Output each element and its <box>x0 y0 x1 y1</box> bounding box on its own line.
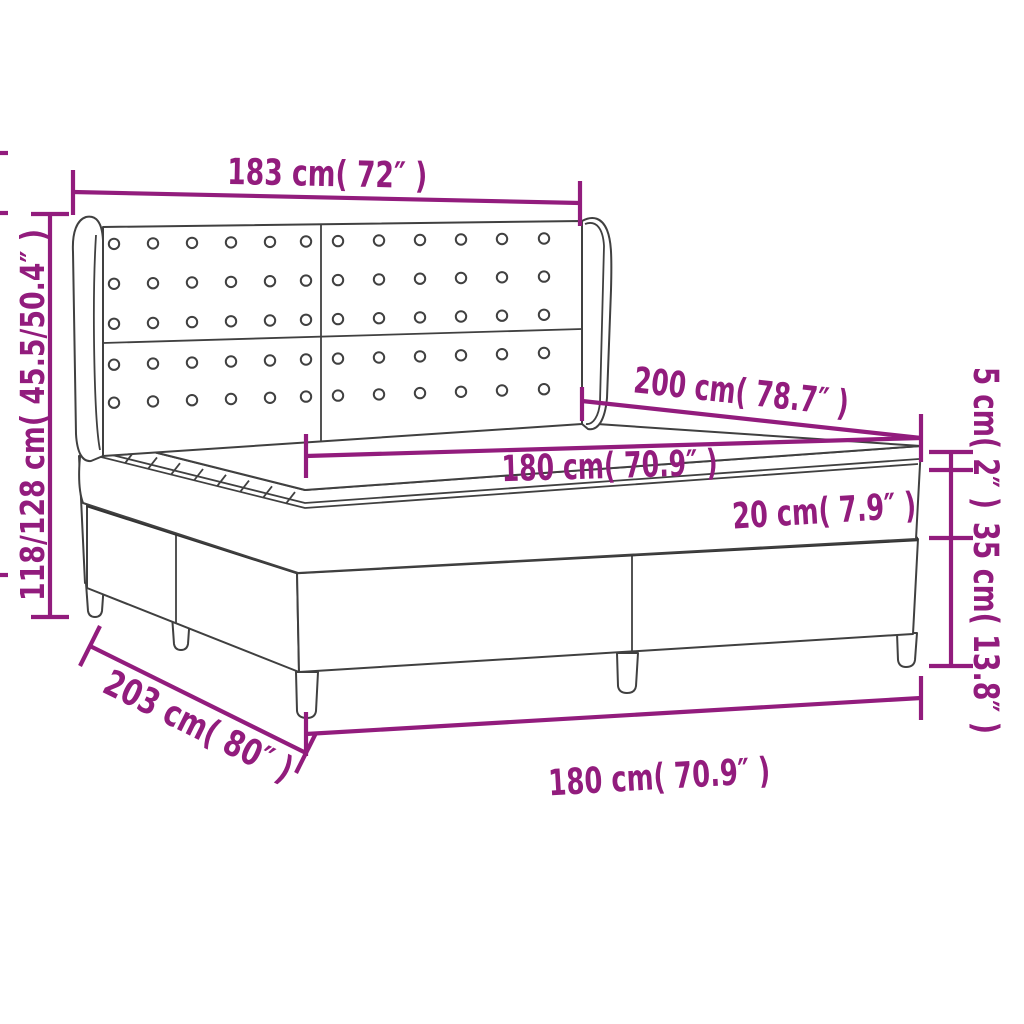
tufting-button <box>301 315 311 325</box>
tufting-button <box>226 237 236 247</box>
headboard-panel <box>103 221 582 456</box>
tufting-button <box>226 277 236 287</box>
tufting-button <box>301 236 311 246</box>
tufting-button <box>539 310 549 320</box>
tufting-button <box>109 239 119 249</box>
tufting-button <box>374 274 384 284</box>
tufting-button <box>187 238 197 248</box>
tufting-button <box>456 234 466 244</box>
dim-tick <box>80 626 100 666</box>
dim-label-base-height: 35 cm( 13.8″ ) <box>965 522 1005 734</box>
tufting-button <box>265 393 275 403</box>
tufting-button <box>539 233 549 243</box>
dim-label-mattress-width-top: 180 cm( 70.9″ ) <box>501 443 718 490</box>
tufting-button <box>333 275 343 285</box>
tufting-button <box>226 356 236 366</box>
dim-label-topper-height: 5 cm( 2″ ) <box>965 367 1005 509</box>
dim-label-total-height: 118/128 cm( 45.5/50.4″ ) <box>13 229 52 601</box>
tufting-button <box>187 277 197 287</box>
bed-diagram-svg: 183 cm( 72″ ) 118/128 cm( 45.5/50.4″ ) 2… <box>0 0 1024 1024</box>
tufting-button <box>456 311 466 321</box>
tufting-button <box>415 351 425 361</box>
tufting-button <box>301 275 311 285</box>
tufting-button <box>415 274 425 284</box>
tufting-button <box>301 391 311 401</box>
bed-leg <box>897 633 917 667</box>
dim-line <box>306 698 921 734</box>
dim-label-base-width-bottom: 180 cm( 70.9″ ) <box>547 751 771 805</box>
tufting-button <box>109 398 119 408</box>
tufting-button <box>539 271 549 281</box>
tufting-button <box>333 236 343 246</box>
tufting-button <box>497 234 507 244</box>
tufting-button <box>226 394 236 404</box>
tufting-button <box>265 276 275 286</box>
bed-drawing <box>73 217 921 718</box>
tufting-button <box>497 385 507 395</box>
tufting-button <box>226 316 236 326</box>
tufting-button <box>374 389 384 399</box>
tufting-button <box>539 384 549 394</box>
tufting-button <box>148 278 158 288</box>
tufting-button <box>415 312 425 322</box>
dim-base-width-bottom: 180 cm( 70.9″ ) <box>306 676 921 804</box>
tufting-button <box>497 311 507 321</box>
tufting-button <box>187 395 197 405</box>
tufting-button <box>374 313 384 323</box>
tufting-button <box>333 390 343 400</box>
tufting-button <box>265 237 275 247</box>
headboard-right-wing <box>582 218 611 429</box>
dim-headboard-width: 183 cm( 72″ ) <box>73 152 580 226</box>
tufting-button <box>109 319 119 329</box>
tufting-button <box>374 352 384 362</box>
dim-label-mattress-length: 200 cm( 78.7″ ) <box>632 360 851 424</box>
tufting-button <box>456 387 466 397</box>
tufting-button <box>109 279 119 289</box>
tufting-button <box>333 314 343 324</box>
tufting-button <box>415 388 425 398</box>
bed-leg <box>296 672 318 718</box>
tufting-button <box>497 349 507 359</box>
tufting-button <box>333 353 343 363</box>
tufting-button <box>187 357 197 367</box>
tufting-button <box>539 348 549 358</box>
tufting-button <box>456 350 466 360</box>
dim-total-height: 118/128 cm( 45.5/50.4″ ) <box>13 214 69 617</box>
dim-label-headboard-width: 183 cm( 72″ ) <box>227 152 428 197</box>
bed-leg <box>617 653 638 693</box>
tufting-button <box>456 273 466 283</box>
tufting-button <box>109 360 119 370</box>
product-dimension-diagram: 183 cm( 72″ ) 118/128 cm( 45.5/50.4″ ) 2… <box>0 0 1024 1024</box>
tufting-button <box>265 355 275 365</box>
tufting-button <box>374 235 384 245</box>
dim-label-total-length: 203 cm( 80″ ) <box>97 663 300 791</box>
tufting-button <box>187 317 197 327</box>
dim-right-heights: 5 cm( 2″ ) 35 cm( 13.8″ ) <box>929 367 1005 734</box>
tufting-button <box>301 354 311 364</box>
tufting-button <box>148 238 158 248</box>
headboard <box>73 217 611 461</box>
tufting-button <box>497 272 507 282</box>
tufting-button <box>148 396 158 406</box>
tufting-button <box>148 318 158 328</box>
tufting-button <box>265 315 275 325</box>
headboard-left-wing <box>73 217 103 461</box>
tufting-button <box>148 358 158 368</box>
tufting-button <box>415 235 425 245</box>
